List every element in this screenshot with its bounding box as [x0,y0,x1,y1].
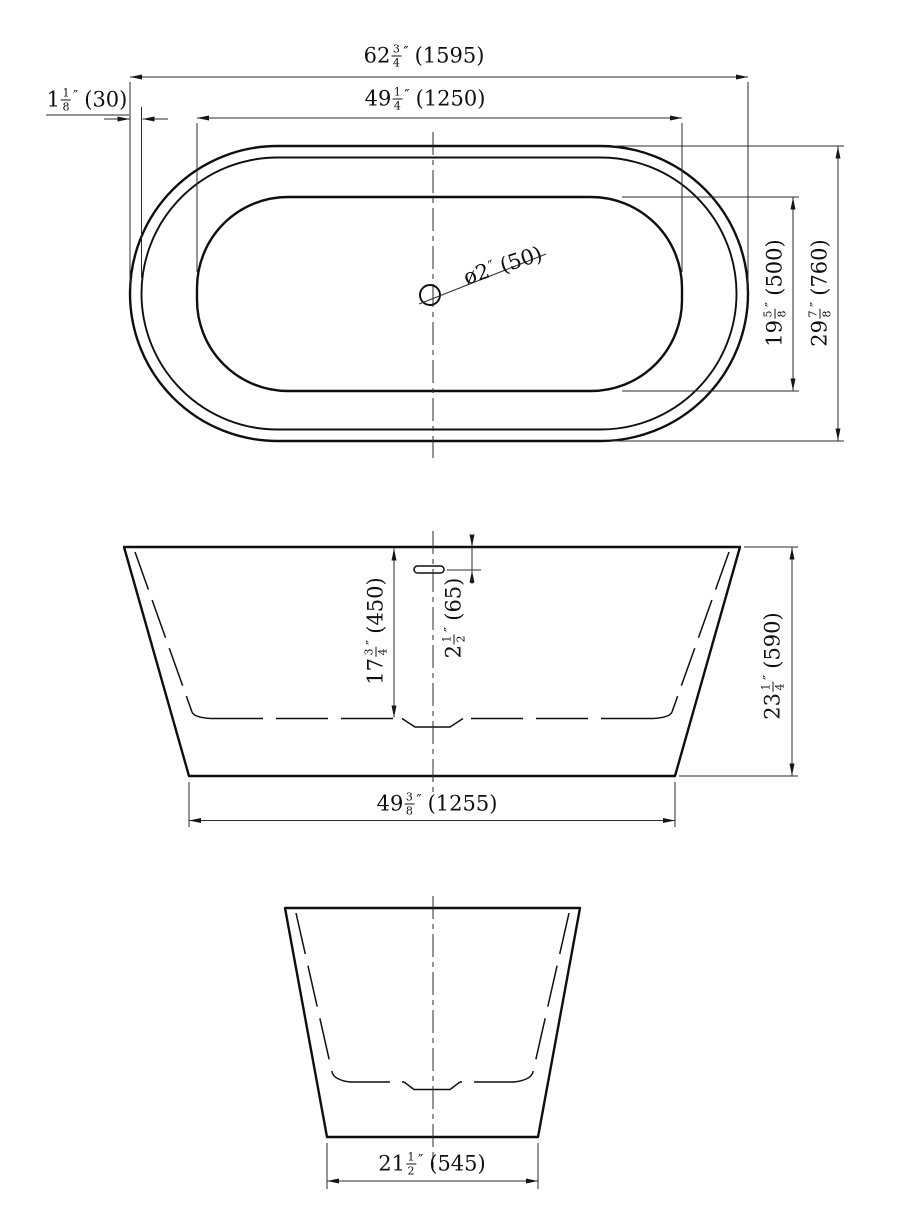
dim-overflow-height-label: 212″(65) [444,578,469,659]
inch-mark: ″ [765,302,779,307]
dim-base-width-label: 2112″(545) [378,1154,485,1179]
inch-mark: ″ [763,675,777,680]
mm-value: (500) [765,239,786,295]
dim-value: 17 [366,658,387,685]
dim-rim-width-label: 118″(30) [47,90,128,115]
mm-value: (1595) [415,46,485,67]
dim-rim-width-lines [46,107,168,278]
fraction: 58 [763,309,788,319]
inch-mark: ″ [444,627,458,632]
dim-basin-length-label: 4914″(1250) [365,89,486,114]
top-view [46,77,844,458]
technical-drawing-page: 6234″(1595) 4914″(1250) 118″(30) ø2″(50)… [0,0,908,1226]
dim-value: 2 [444,645,465,658]
basin-bottom-corner-right [653,712,672,719]
dim-overflow-height-lines [447,535,481,584]
fraction: 12 [442,634,467,644]
inch-mark: ″ [403,46,408,60]
dim-overall-width-label: 2978″(760) [810,239,835,346]
dim-value: 49 [365,89,392,110]
tub-front-outline [124,547,740,776]
fraction: 18 [61,88,71,113]
drain-recess [404,1082,460,1090]
mm-value: (65) [444,578,465,621]
basin-bottom-corner-left [332,1072,350,1082]
side-view [285,896,580,1189]
mm-value: (590) [763,612,784,668]
inch-mark: ″ [810,302,824,307]
dim-value: 21 [378,1154,405,1175]
mm-value: (545) [429,1154,485,1175]
dim-value: 23 [763,693,784,720]
fraction: 14 [392,87,402,112]
basin-bottom-corner-right [514,1072,533,1082]
mm-value: (30) [84,90,127,111]
basin-bottom-corner-left [192,712,211,719]
fraction: 34 [391,44,401,69]
dim-interior-depth-label: 1734″(450) [366,577,391,684]
fraction: 34 [364,647,389,657]
dim-basin-width-label: 1958″(500) [765,239,790,346]
inch-mark: ″ [418,1154,423,1168]
fraction: 78 [808,309,833,319]
dim-value: 49 [377,794,404,815]
fraction: 14 [761,682,786,692]
mm-value: (1250) [416,89,486,110]
dim-basin-length-lines [197,118,682,272]
inch-mark: ″ [404,89,409,103]
dim-value: 1 [47,90,60,111]
mm-value: (760) [810,239,831,295]
dim-base-length-label: 4938″(1255) [377,794,498,819]
overflow-slot [414,566,444,573]
front-view [124,531,798,827]
dim-value: 62 [364,46,391,67]
inch-mark: ″ [366,640,380,645]
mm-value: (1255) [428,794,498,815]
inch-mark: ″ [73,90,78,104]
dim-value: 19 [765,320,786,347]
dim-overall-height-label: 2314″(590) [763,612,788,719]
dim-overall-length-label: 6234″(1595) [364,46,485,71]
fraction: 38 [404,792,414,817]
inch-mark: ″ [416,794,421,808]
fraction: 12 [406,1152,416,1177]
mm-value: (450) [366,577,387,633]
dim-value: 29 [810,320,831,347]
